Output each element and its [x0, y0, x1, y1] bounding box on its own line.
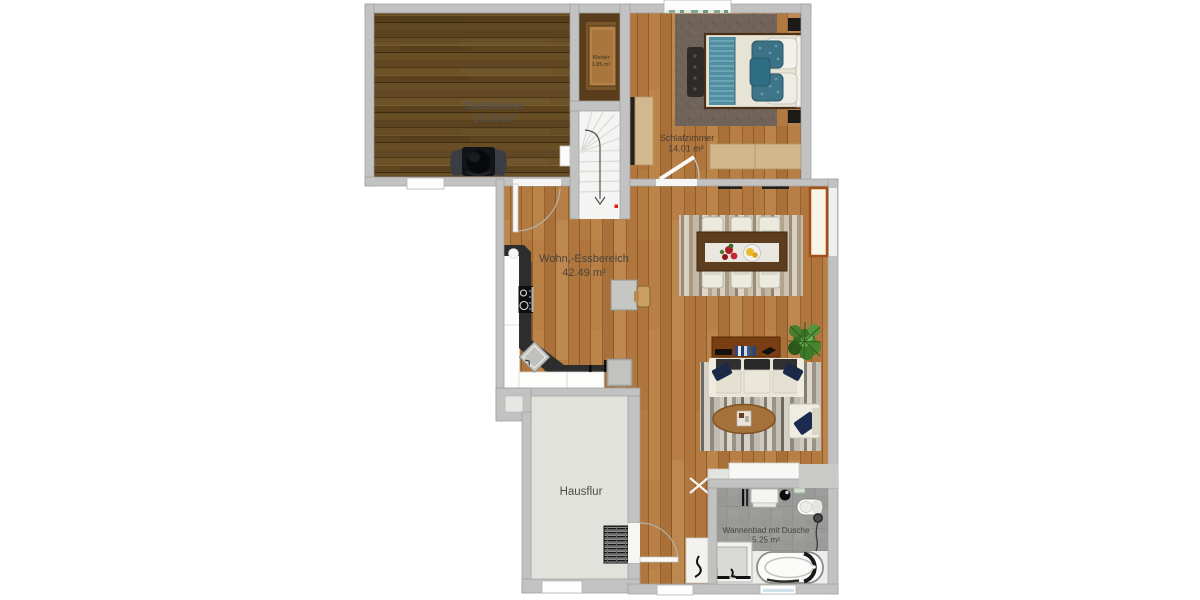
svg-text:Kleider: Kleider: [592, 55, 609, 61]
svg-text:16.33 m²: 16.33 m²: [473, 113, 515, 125]
svg-text:Wohn,-Essbereich: Wohn,-Essbereich: [539, 253, 629, 265]
svg-text:5.25 m²: 5.25 m²: [752, 536, 780, 545]
svg-text:Schlafzimmer: Schlafzimmer: [660, 133, 715, 143]
svg-text:1.85 m²: 1.85 m²: [592, 62, 611, 68]
svg-text:Hausflur: Hausflur: [560, 486, 603, 498]
svg-text:Wannenbad mit Dusche: Wannenbad mit Dusche: [722, 526, 810, 535]
svg-text:42.49 m²: 42.49 m²: [562, 267, 606, 279]
svg-text:Dachterasse: Dachterasse: [465, 100, 524, 112]
svg-text:14.01 m²: 14.01 m²: [668, 144, 704, 154]
